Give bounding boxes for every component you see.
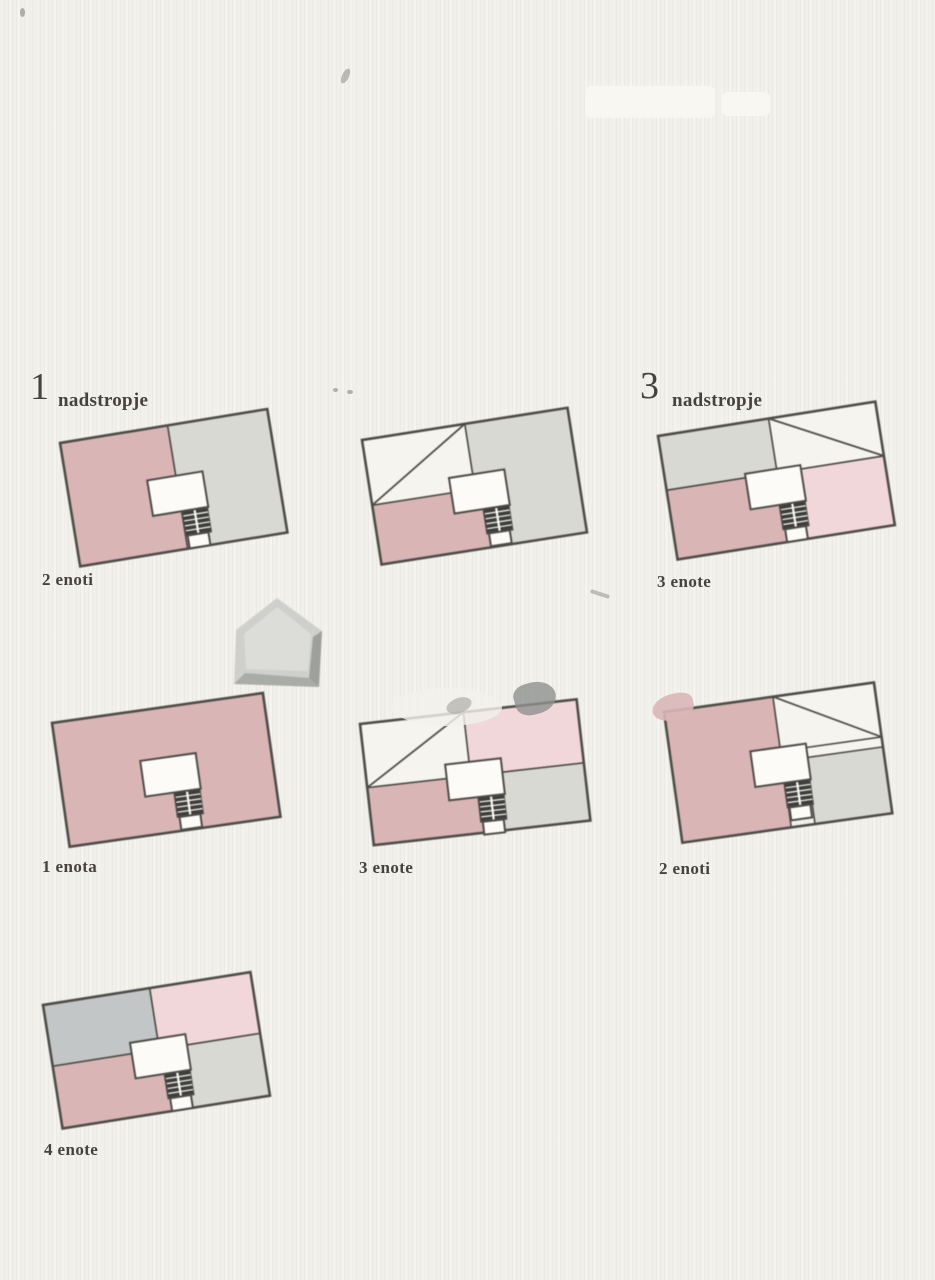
floor-1-label: nadstropje xyxy=(58,391,148,410)
units-label-mid-right: 2 enoti xyxy=(659,860,710,877)
floor-1-number: 1 xyxy=(30,368,49,406)
floor-3-label: nadstropje xyxy=(672,391,762,410)
units-label-mid-left: 1 enota xyxy=(42,858,97,875)
units-label-mid-center: 3 enote xyxy=(359,859,413,876)
units-label-top-left: 2 enoti xyxy=(42,571,93,588)
scanned-floor-plan-page: 1 nadstropje 2 enoti 3 nadstropje 3 enot… xyxy=(0,0,935,1280)
floor-3-number: 3 xyxy=(640,367,659,405)
labels: 1 nadstropje 2 enoti 3 nadstropje 3 enot… xyxy=(0,0,935,1280)
units-label-top-right: 3 enote xyxy=(657,573,711,590)
units-label-bottom: 4 enote xyxy=(44,1141,98,1158)
